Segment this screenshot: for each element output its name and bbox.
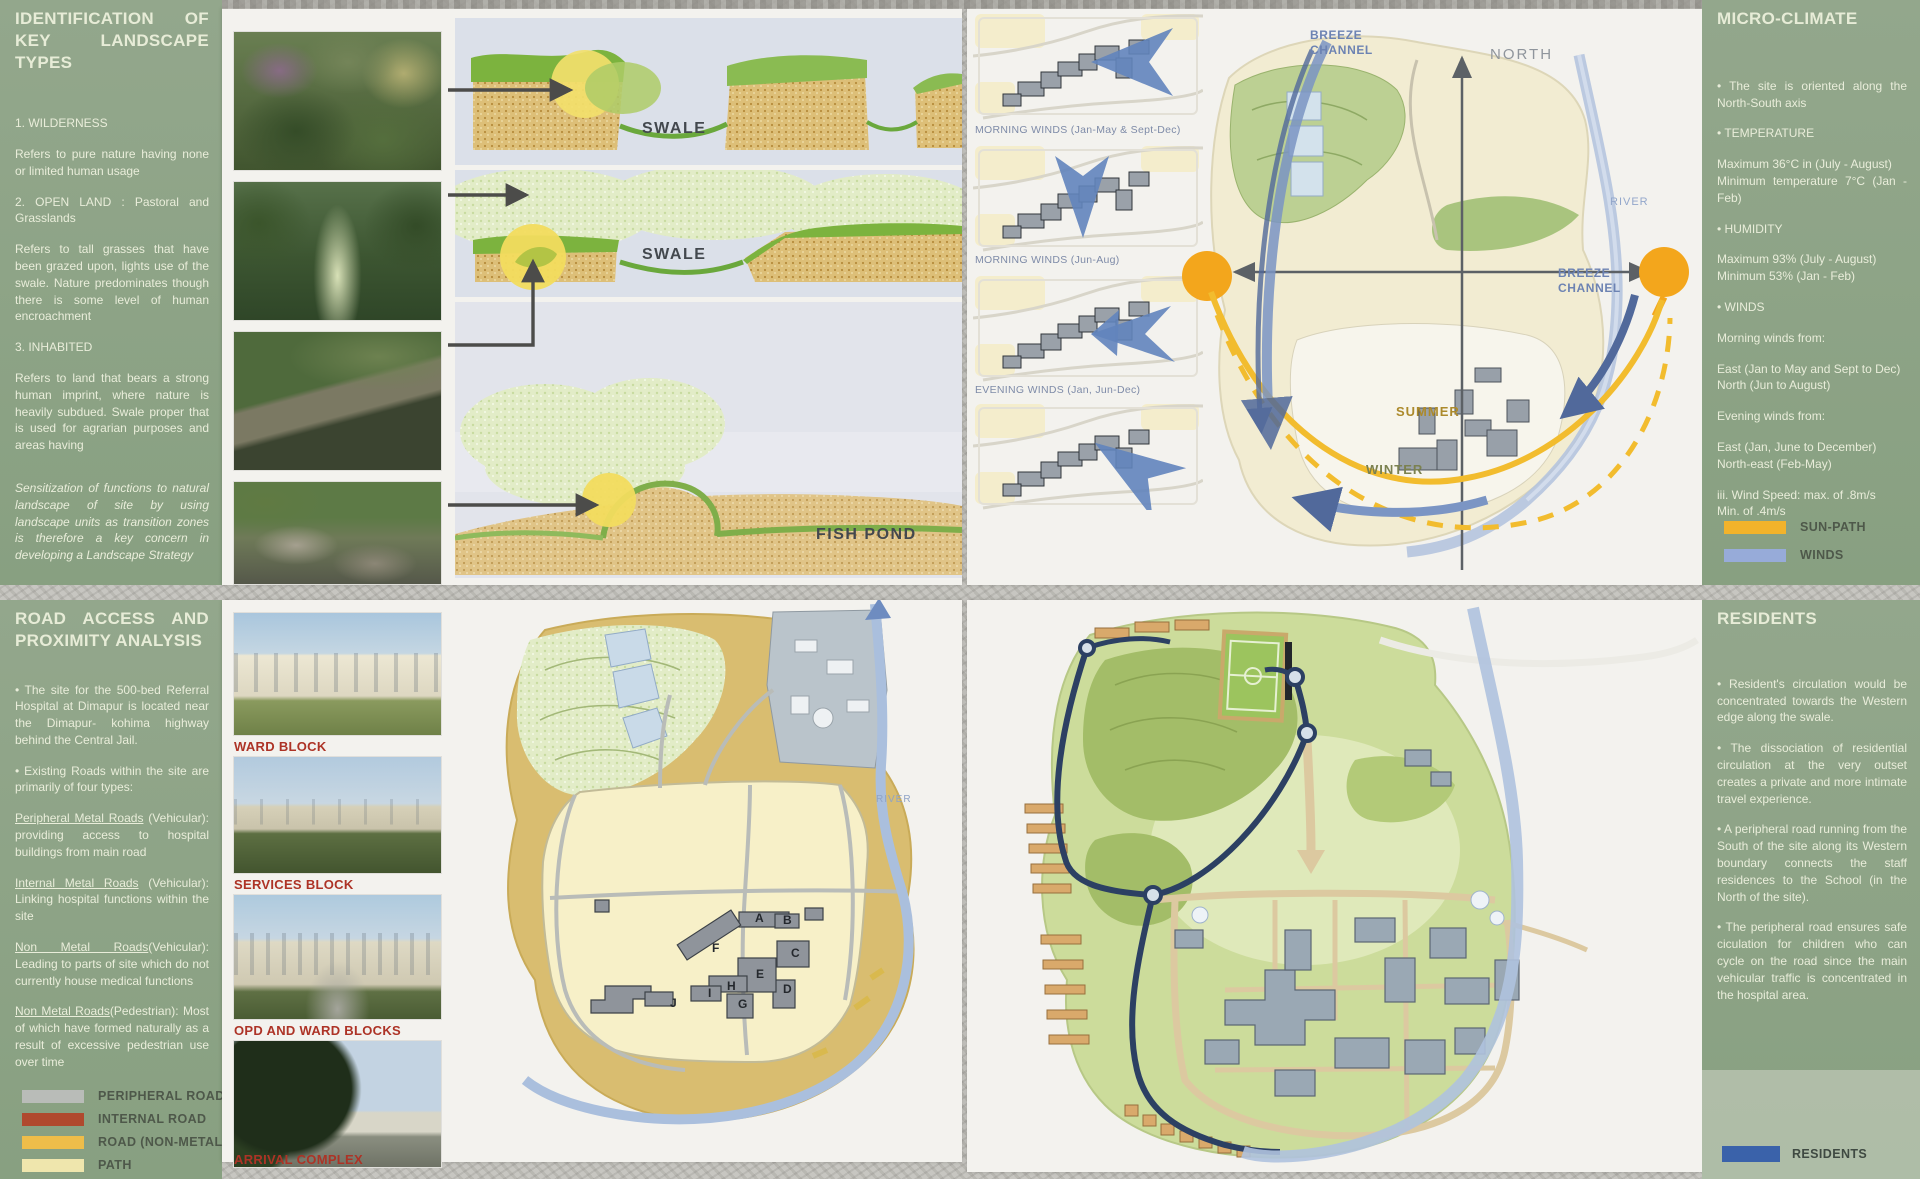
road-non-metal-legend-swatch [22, 1136, 84, 1149]
photo-ward-block [233, 612, 442, 736]
winds-legend-label: WINDS [1800, 548, 1844, 562]
landscape-panel-title: IDENTIFICATION OF KEY LANDSCAPE TYPES [15, 8, 209, 73]
photo-services-block [233, 756, 442, 874]
internal-road-legend-swatch [22, 1113, 84, 1126]
building-letter: C [791, 946, 800, 960]
north-label: NORTH [1490, 46, 1553, 63]
winter-label: WINTER [1366, 462, 1423, 477]
road-access-para-nonmetal-p: Non Metal Roads(Pedestrian): Most of whi… [15, 1003, 209, 1070]
winds-legend-swatch [1724, 549, 1786, 562]
microclimate-para: Morning winds from: [1717, 330, 1907, 347]
microclimate-panel-title: MICRO-CLIMATE [1717, 8, 1907, 30]
building-letter: H [727, 979, 736, 993]
building-letter: G [738, 997, 747, 1011]
microclimate-panel: MICRO-CLIMATE • The site is oriented alo… [1702, 0, 1920, 585]
breeze-channel-label-right: BREEZE CHANNEL [1558, 266, 1621, 296]
opd-ward-blocks-label: OPD AND WARD BLOCKS [234, 1023, 401, 1038]
road-access-para-peripheral: Peripheral Metal Roads (Vehicular): prov… [15, 810, 209, 860]
peripheral-road-legend-swatch [22, 1090, 84, 1103]
services-block-label: SERVICES BLOCK [234, 877, 354, 892]
microclimate-para: East (Jan, June to December) North-east … [1717, 439, 1907, 473]
sun-path-legend-swatch [1724, 521, 1786, 534]
residents-para: • The peripheral road ensures safe cicul… [1717, 919, 1907, 1003]
landscape-para-note: Sensitization of functions to natural la… [15, 480, 209, 564]
section-arrow-icons [444, 0, 967, 585]
microclimate-para: • The site is oriented along the North-S… [1717, 78, 1907, 112]
residents-para: • Resident's circulation would be concen… [1717, 676, 1907, 726]
landscape-para: Refers to land that bears a strong human… [15, 370, 209, 454]
road-type-term: Peripheral Metal Roads [15, 811, 143, 825]
residents-para: • A peripheral road running from the Sou… [1717, 821, 1907, 905]
landscape-para-inhabited: 3. INHABITED [15, 339, 209, 356]
building-letter: J [670, 996, 677, 1010]
road-access-para-internal: Internal Metal Roads (Vehicular): Linkin… [15, 875, 209, 925]
internal-road-legend-label: INTERNAL ROAD [98, 1112, 206, 1126]
photo-forest-path [233, 181, 442, 321]
building-letter: A [755, 911, 764, 925]
microclimate-para-winds: • WINDS [1717, 299, 1907, 316]
microclimate-para-windspeed: iii. Wind Speed: max. of .8m/s Min. of .… [1717, 487, 1907, 521]
residents-legend-swatch [1722, 1146, 1780, 1162]
road-type-term: Internal Metal Roads [15, 876, 139, 890]
peripheral-road-legend-label: PERIPHERAL ROAD [98, 1089, 225, 1103]
road-access-para-nonmetal-v: Non Metal Roads(Vehicular): Leading to p… [15, 939, 209, 989]
path-legend-swatch [22, 1159, 84, 1172]
arrival-complex-label: ARRIVAL COMPLEX [234, 1152, 363, 1167]
residents-legend-backing [1702, 1070, 1920, 1179]
microclimate-para-temperature: • TEMPERATURE [1717, 125, 1907, 142]
microclimate-para: Maximum 93% (July - August) Minimum 53% … [1717, 251, 1907, 285]
road-type-term: Non Metal Roads [15, 940, 148, 954]
residents-para: • The dissociation of residential circul… [1717, 740, 1907, 807]
river-label-tr: RIVER [1610, 196, 1649, 208]
road-access-panel-title: ROAD ACCESS AND PROXIMITY ANALYSIS [15, 608, 209, 652]
building-letter: F [712, 941, 719, 955]
road-non-metal-legend-label: ROAD (NON-METAL) [98, 1135, 227, 1149]
photo-wilderness-vegetation [233, 31, 442, 171]
presentation-board: IDENTIFICATION OF KEY LANDSCAPE TYPES 1.… [0, 0, 1920, 1179]
breeze-channel-label-top: BREEZE CHANNEL [1310, 28, 1373, 58]
landscape-para: Refers to pure nature having none or lim… [15, 146, 209, 180]
river-label-bl: RIVER [876, 794, 912, 805]
building-letter: D [783, 982, 792, 996]
photo-stone-wall [233, 331, 442, 471]
photo-opd-ward-blocks [233, 894, 442, 1020]
road-access-para: • The site for the 500-bed Referral Hosp… [15, 682, 209, 749]
building-letter: I [708, 986, 711, 1000]
microclimate-para: Evening winds from: [1717, 408, 1907, 425]
residents-panel-title: RESIDENTS [1717, 608, 1907, 630]
residents-legend-label: RESIDENTS [1792, 1147, 1867, 1161]
summer-label: SUMMER [1396, 404, 1460, 419]
road-type-term: Non Metal Roads [15, 1004, 110, 1018]
sun-path-legend-label: SUN-PATH [1800, 520, 1866, 534]
microclimate-para: East (Jan to May and Sept to Dec) North … [1717, 361, 1907, 395]
road-access-para: • Existing Roads within the site are pri… [15, 763, 209, 797]
board-texture-strip [222, 0, 1702, 9]
building-letter: E [756, 967, 764, 981]
microclimate-para-humidity: • HUMIDITY [1717, 221, 1907, 238]
microclimate-para: Maximum 36°C in (July - August) Minimum … [1717, 156, 1907, 206]
landscape-para-openland: 2. OPEN LAND : Pastoral and Grasslands [15, 194, 209, 228]
building-letter: B [783, 913, 792, 927]
landscape-para-wilderness: 1. WILDERNESS [15, 115, 209, 132]
photo-arrival-complex [233, 1040, 442, 1168]
path-legend-label: PATH [98, 1158, 132, 1172]
ward-block-label: WARD BLOCK [234, 739, 327, 754]
landscape-types-panel: IDENTIFICATION OF KEY LANDSCAPE TYPES 1.… [0, 0, 222, 585]
road-access-site-plan [455, 600, 965, 1162]
landscape-para: Refers to tall grasses that have been gr… [15, 241, 209, 325]
photo-rock-garden [233, 481, 442, 585]
residents-circulation-plan [975, 600, 1700, 1172]
